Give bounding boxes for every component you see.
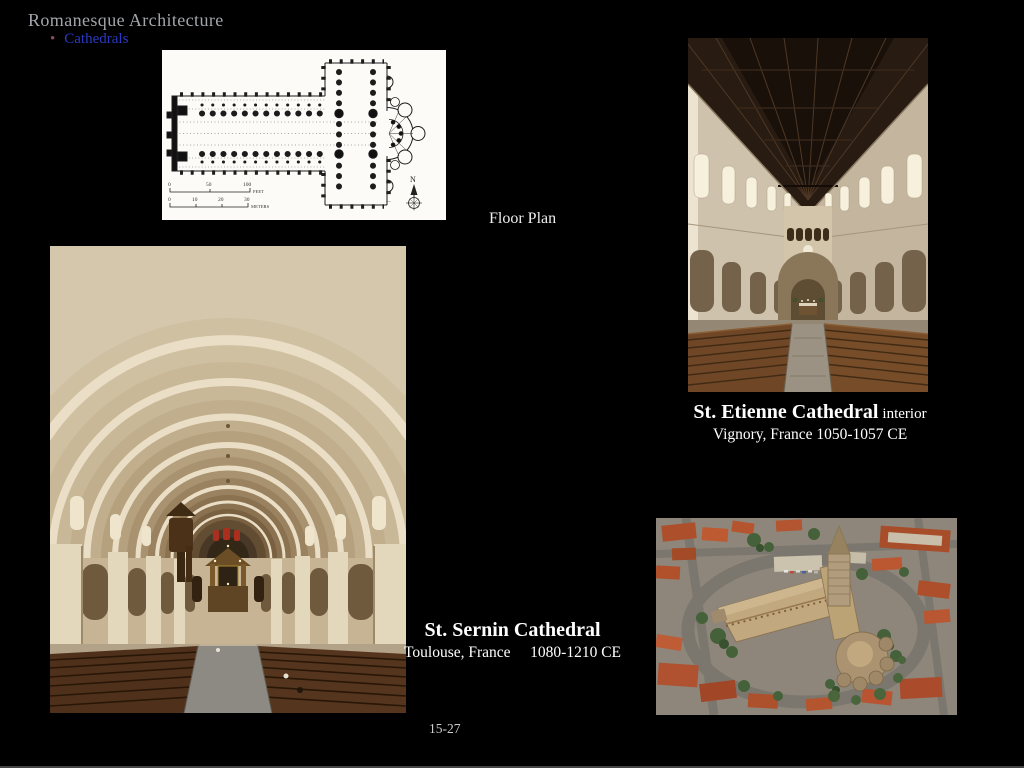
- st-sernin-aerial-photo: [656, 518, 957, 715]
- svg-text:FEET: FEET: [253, 189, 264, 194]
- st-sernin-caption: St. Sernin Cathedral Toulouse, France 10…: [404, 619, 621, 662]
- st-sernin-caption-line2: Toulouse, France 1080-1210 CE: [404, 644, 621, 662]
- st-sernin-caption-title: St. Sernin Cathedral: [404, 619, 621, 642]
- page-number: 15-27: [429, 721, 461, 737]
- st-sernin-caption-location: Toulouse, France: [404, 644, 511, 662]
- svg-text:50: 50: [206, 182, 212, 188]
- presentation-slide: Romanesque Architecture •Cathedrals: [0, 0, 1024, 768]
- st-sernin-interior-photo: [50, 246, 406, 713]
- st-etienne-caption-qualifier: interior: [882, 406, 926, 422]
- svg-text:30: 30: [244, 197, 250, 203]
- svg-text:0: 0: [168, 197, 171, 203]
- st-etienne-interior-photo: [688, 38, 928, 392]
- bullet-marker: •: [50, 31, 55, 47]
- floor-plan-drawing: 0 50 100 FEET 0 10 20 30 METERS N: [162, 50, 446, 220]
- bullet-label[interactable]: Cathedrals: [64, 31, 128, 47]
- floor-plan-image: 0 50 100 FEET 0 10 20 30 METERS N: [162, 50, 446, 220]
- svg-text:20: 20: [218, 197, 224, 203]
- svg-text:100: 100: [243, 182, 252, 188]
- svg-text:0: 0: [168, 182, 171, 188]
- svg-text:10: 10: [192, 197, 198, 203]
- floor-plan-label: Floor Plan: [489, 210, 556, 228]
- bullet-item-cathedrals[interactable]: •Cathedrals: [50, 31, 128, 48]
- st-etienne-caption-title: St. Etienne Cathedral: [693, 401, 878, 423]
- slide-title: Romanesque Architecture: [28, 10, 224, 31]
- svg-text:N: N: [410, 175, 416, 184]
- st-sernin-caption-date: 1080-1210 CE: [530, 644, 621, 662]
- st-etienne-caption-line2: Vignory, France 1050-1057 CE: [648, 426, 972, 444]
- st-etienne-caption: St. Etienne Cathedral interior Vignory, …: [648, 401, 972, 444]
- svg-text:METERS: METERS: [251, 204, 270, 209]
